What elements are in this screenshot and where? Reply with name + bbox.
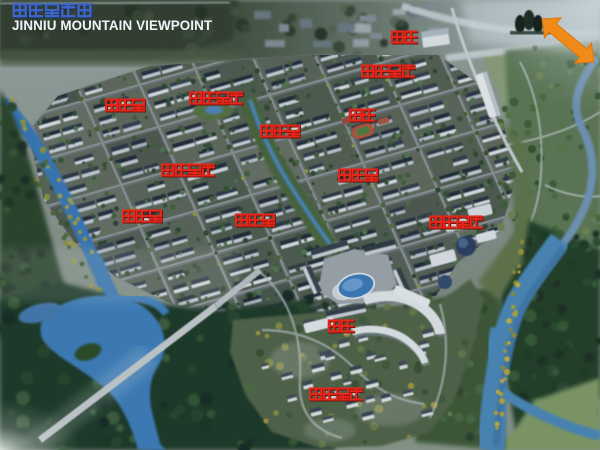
svg-text:JINNIU MOUNTAIN VIEWPOINT: JINNIU MOUNTAIN VIEWPOINT (12, 18, 213, 33)
